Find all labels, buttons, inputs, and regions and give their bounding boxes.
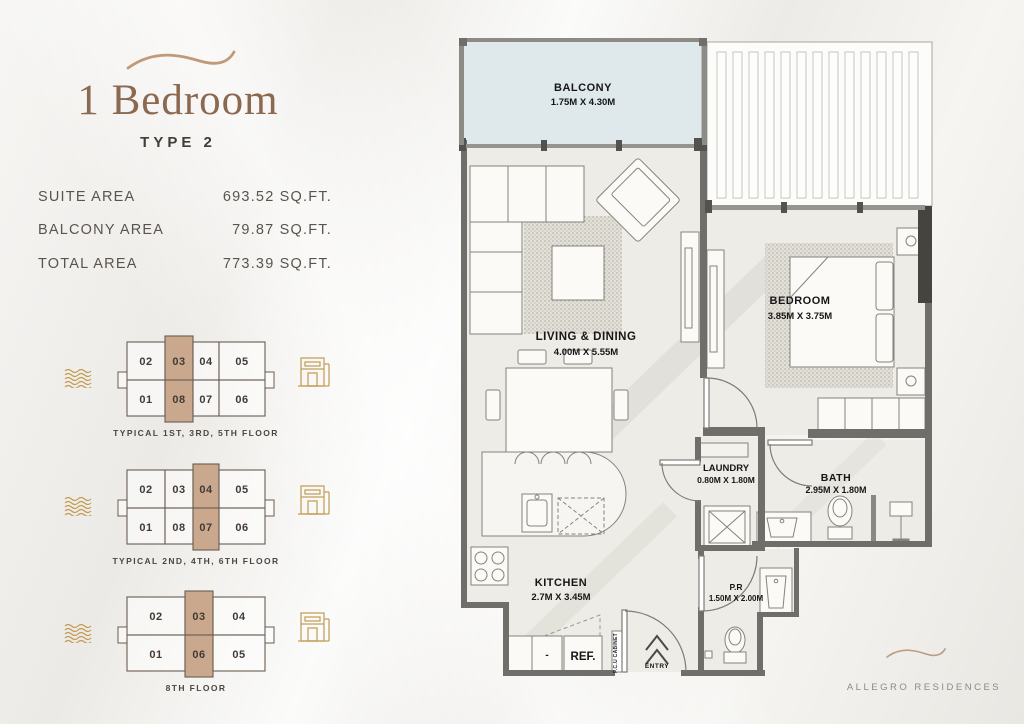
waves-icon <box>64 368 92 388</box>
balcony-dims: 1.75M X 4.30M <box>551 97 616 108</box>
bath-label: BATH <box>821 472 851 484</box>
bed-pillow <box>876 262 893 310</box>
unit-number: 06 <box>235 522 248 534</box>
shower-head <box>890 502 912 516</box>
building-icon <box>296 480 332 520</box>
floor-plate-caption: 8TH FLOOR <box>96 683 296 693</box>
bath-door <box>768 440 812 445</box>
total-area-value: 773.39 SQ.FT. <box>223 256 332 272</box>
pr-toilet <box>725 627 745 653</box>
unit-number: 06 <box>192 649 205 661</box>
unit-number: 03 <box>192 611 205 623</box>
suite-area-value: 693.52 SQ.FT. <box>223 189 332 205</box>
balcony-area-row: BALCONY AREA 79.87 SQ.FT. <box>38 222 332 238</box>
bath-toilet <box>828 496 852 526</box>
bedroom-label: BEDROOM <box>770 295 831 307</box>
floor-plate-diagram: 020304010605 <box>116 589 276 681</box>
bed-pillow <box>876 314 893 362</box>
waves-icon <box>64 623 92 643</box>
balcony-area-value: 79.87 SQ.FT. <box>232 222 332 238</box>
balcony-label: BALCONY <box>554 82 612 94</box>
living-label: LIVING & DINING <box>536 331 637 343</box>
waves-icon <box>64 496 92 516</box>
total-area-label: TOTAL AREA <box>38 256 138 272</box>
living-window-wall <box>461 144 707 148</box>
pr-sink <box>760 568 792 616</box>
fridge-label: REF. <box>571 651 596 663</box>
pr-door <box>699 556 704 611</box>
floor-plate-row-2: 0203040501080706 TYPICAL 2ND, 4TH, 6TH F… <box>0 456 440 576</box>
unit-number: 04 <box>199 484 213 496</box>
page-title: 1 Bedroom <box>0 76 356 125</box>
unit-number: 07 <box>199 394 212 406</box>
dining-chair <box>518 350 546 364</box>
unit-number: 05 <box>232 649 245 661</box>
kitchen-label: KITCHEN <box>535 577 587 589</box>
bath-dims: 2.95M X 1.80M <box>805 485 866 495</box>
balcony-area-label: BALCONY AREA <box>38 222 164 238</box>
living-dims: 4.00M X 5.55M <box>554 347 619 358</box>
kitchen-island <box>482 452 626 536</box>
unit-number: 04 <box>199 356 213 368</box>
unit-number: 01 <box>139 522 152 534</box>
bedroom-window-wall <box>707 205 925 210</box>
suite-area-label: SUITE AREA <box>38 189 135 205</box>
suite-area-row: SUITE AREA 693.52 SQ.FT. <box>38 189 332 205</box>
dining-table <box>506 368 612 452</box>
unit-number: 08 <box>172 522 185 534</box>
dining-chair <box>486 390 500 420</box>
laundry-shelf <box>700 443 748 457</box>
unit-number: 02 <box>149 611 162 623</box>
laundry-door <box>660 460 700 465</box>
entry-label: ENTRY <box>645 663 669 670</box>
unit-number: 05 <box>235 356 248 368</box>
unit-number: 05 <box>235 484 248 496</box>
info-panel: 1 Bedroom TYPE 2 SUITE AREA 693.52 SQ.FT… <box>0 0 440 724</box>
floor-plate-row-3: 020304010605 8TH FLOOR <box>0 583 440 703</box>
cabinet-dash-label: - <box>545 650 548 661</box>
entry-door <box>622 610 627 672</box>
bedroom-door <box>704 378 709 428</box>
coffee-table <box>552 246 604 300</box>
floor-plate-diagram: 0203040501080706 <box>116 334 276 426</box>
building-icon <box>296 352 332 392</box>
floor-plate-caption: TYPICAL 1ST, 3RD, 5TH FLOOR <box>96 428 296 438</box>
laundry-label: LAUNDRY <box>703 463 750 474</box>
unit-number: 02 <box>139 484 152 496</box>
bedroom-dims: 3.85M X 3.75M <box>768 311 833 322</box>
unit-number: 01 <box>149 649 162 661</box>
building-icon <box>296 607 332 647</box>
unit-number: 03 <box>172 356 185 368</box>
floor-plate-caption: TYPICAL 2ND, 4TH, 6TH FLOOR <box>96 556 296 566</box>
unit-number: 06 <box>235 394 248 406</box>
nightstand <box>897 368 925 395</box>
brand-wave-logo <box>122 44 237 76</box>
total-area-row: TOTAL AREA 773.39 SQ.FT. <box>38 256 332 272</box>
unit-type: TYPE 2 <box>0 134 356 151</box>
floor-plate-row-1: 0203040501080706 TYPICAL 1ST, 3RD, 5TH F… <box>0 328 440 448</box>
unit-number: 08 <box>172 394 185 406</box>
balcony-wall <box>459 38 464 145</box>
unit-number: 04 <box>232 611 246 623</box>
dining-chair <box>614 390 628 420</box>
pr-dims: 1.50M X 2.00M <box>709 594 764 603</box>
pr-label: P.R <box>729 582 742 592</box>
unit-number: 02 <box>139 356 152 368</box>
fcu-cabinet-label: F.C.U CABINET <box>613 633 619 673</box>
kitchen-dims: 2.7M X 3.45M <box>531 592 590 603</box>
brand-name: ALLEGRO RESIDENCES <box>814 682 1024 693</box>
laundry-dims: 0.80M X 1.80M <box>697 475 755 485</box>
floor-plate-diagram: 0203040501080706 <box>116 462 276 554</box>
footer-wave-logo <box>884 644 948 662</box>
unit-number: 01 <box>139 394 152 406</box>
unit-number: 03 <box>172 484 185 496</box>
unit-number: 07 <box>199 522 212 534</box>
kitchen-cabinet <box>506 636 532 672</box>
